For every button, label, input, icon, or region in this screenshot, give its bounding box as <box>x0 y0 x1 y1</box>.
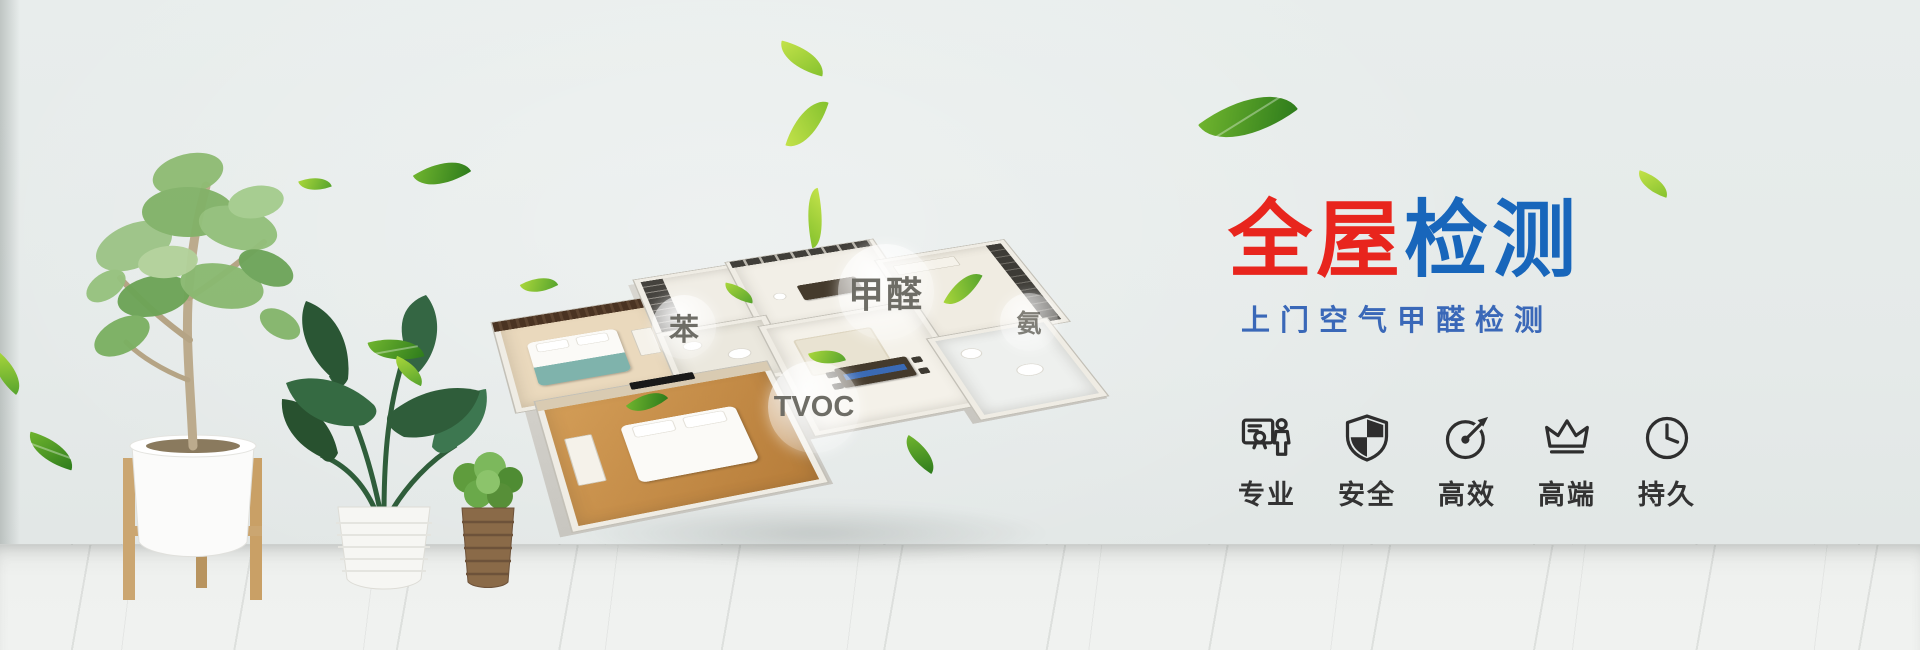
wall-corner-shadow <box>0 0 20 560</box>
furniture-bed <box>527 329 632 387</box>
certificate-person-icon <box>1241 412 1293 464</box>
subheadline: 上门空气甲醛检测 <box>1241 297 1553 339</box>
chair <box>911 356 924 363</box>
pollutant-label-formaldehyde: 甲醛 <box>848 266 924 318</box>
headline: 全屋检测 <box>1228 198 1580 282</box>
clock-icon <box>1641 412 1693 464</box>
feature-item-lasting: 持久 <box>1617 412 1717 512</box>
pillow <box>536 339 569 352</box>
decor-plant <box>772 292 788 301</box>
pillow <box>576 333 609 345</box>
feature-label: 安全 <box>1338 473 1396 512</box>
pillow <box>684 411 727 428</box>
gauge-icon <box>1441 412 1493 464</box>
feature-label: 专业 <box>1238 473 1296 512</box>
furniture-bed <box>620 406 760 483</box>
headline-part-red: 全屋 <box>1228 193 1404 287</box>
pollutant-bubble-benzene: 苯 <box>652 295 716 359</box>
chair <box>918 367 931 374</box>
hero-banner: 苯 甲醛 氨 TVOC 全屋检测 上门空气甲醛检测 <box>0 0 1920 650</box>
feature-item-efficient: 高效 <box>1417 412 1517 512</box>
bath-fixture <box>726 347 754 361</box>
feature-item-highend: 高端 <box>1517 412 1617 512</box>
shield-icon <box>1341 412 1393 464</box>
bath-fixture <box>958 347 985 360</box>
feature-item-safe: 安全 <box>1317 412 1417 512</box>
feature-label: 持久 <box>1638 473 1696 512</box>
headline-part-blue: 检测 <box>1404 193 1580 287</box>
house-3d-model <box>515 160 1075 560</box>
accent-wall <box>492 297 656 332</box>
table-runner <box>843 364 907 381</box>
crown-icon <box>1541 412 1593 464</box>
feature-item-professional: 专业 <box>1217 412 1317 512</box>
pollutant-bubble-formaldehyde: 甲醛 <box>838 244 934 340</box>
pollutant-label-benzene: 苯 <box>669 305 699 349</box>
bath-fixture <box>1013 362 1047 378</box>
feature-label: 高效 <box>1438 473 1496 512</box>
pollutant-label-tvoc: TVOC <box>774 391 855 424</box>
pollutant-bubble-tvoc: TVOC <box>768 361 860 453</box>
feature-label: 高端 <box>1538 473 1596 512</box>
pollutant-label-ammonia: 氨 <box>1016 304 1041 340</box>
furniture-dresser <box>564 434 607 486</box>
pillow <box>633 420 676 437</box>
pollutant-bubble-ammonia: 氨 <box>1000 293 1058 351</box>
blanket <box>534 352 632 386</box>
feature-list: 专业 安全 高效 <box>1217 412 1717 512</box>
